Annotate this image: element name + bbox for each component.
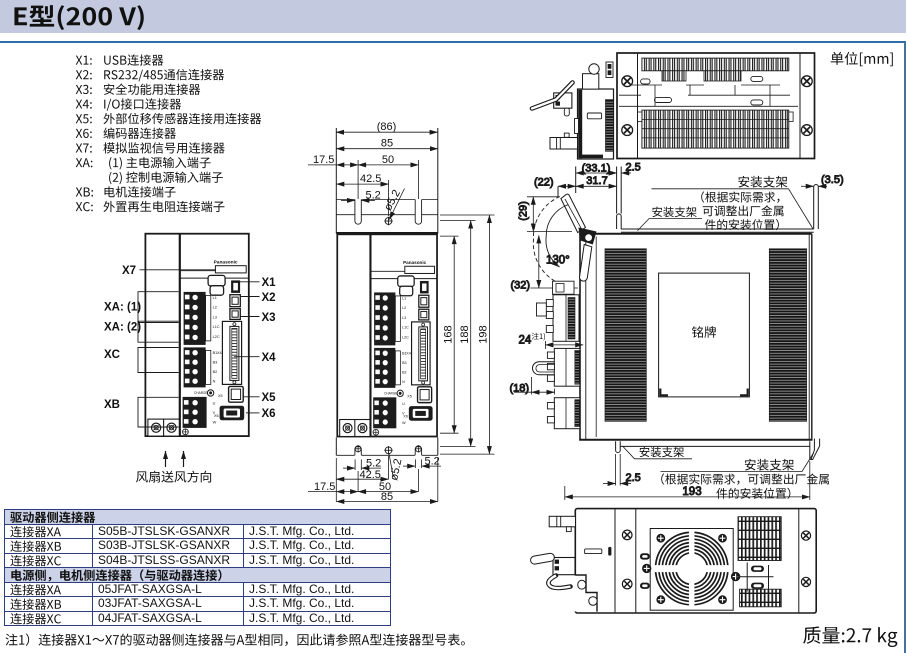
svg-text:188: 188	[459, 325, 471, 343]
svg-text:XA: (2): XA: (2)	[104, 322, 141, 334]
svg-text:X5: X5	[262, 392, 277, 404]
svg-text:193: 193	[682, 486, 701, 498]
svg-text:XB: XB	[104, 399, 120, 411]
svg-text:42.5: 42.5	[360, 469, 381, 481]
svg-text:17.5: 17.5	[314, 481, 335, 493]
svg-text:85: 85	[381, 491, 393, 503]
svg-text:2.5: 2.5	[626, 472, 641, 484]
svg-text:(86): (86)	[377, 121, 397, 133]
svg-text:(32): (32)	[511, 280, 531, 292]
svg-text:(3.5): (3.5)	[821, 174, 844, 186]
svg-text:85: 85	[381, 138, 393, 150]
svg-text:(29): (29)	[518, 201, 530, 221]
svg-text:5.2: 5.2	[425, 455, 440, 467]
svg-text:24: 24	[519, 335, 532, 347]
svg-text:130°: 130°	[546, 255, 570, 267]
svg-text:17.5: 17.5	[313, 154, 334, 166]
svg-text:X1: X1	[262, 277, 277, 289]
svg-text:198: 198	[478, 325, 490, 343]
svg-text:(33.1): (33.1)	[582, 162, 611, 174]
svg-text:2.5: 2.5	[626, 162, 641, 174]
svg-text:X6: X6	[262, 408, 276, 420]
svg-text:50: 50	[382, 154, 394, 166]
svg-text:XA: (1): XA: (1)	[104, 302, 141, 314]
svg-text:X3: X3	[262, 312, 276, 324]
svg-text:168: 168	[443, 325, 455, 343]
svg-text:(22): (22)	[534, 176, 554, 188]
svg-text:ø5.2: ø5.2	[382, 188, 403, 213]
svg-text:XC: XC	[104, 349, 120, 361]
svg-text:5.2: 5.2	[366, 457, 381, 469]
svg-text:42.5: 42.5	[360, 173, 381, 185]
svg-text:X7: X7	[122, 265, 136, 277]
svg-text:(18): (18)	[510, 382, 530, 394]
svg-text:X4: X4	[262, 352, 277, 364]
svg-text:X2: X2	[262, 292, 276, 304]
svg-text:5.2: 5.2	[366, 190, 381, 202]
svg-text:31.7: 31.7	[586, 175, 607, 187]
